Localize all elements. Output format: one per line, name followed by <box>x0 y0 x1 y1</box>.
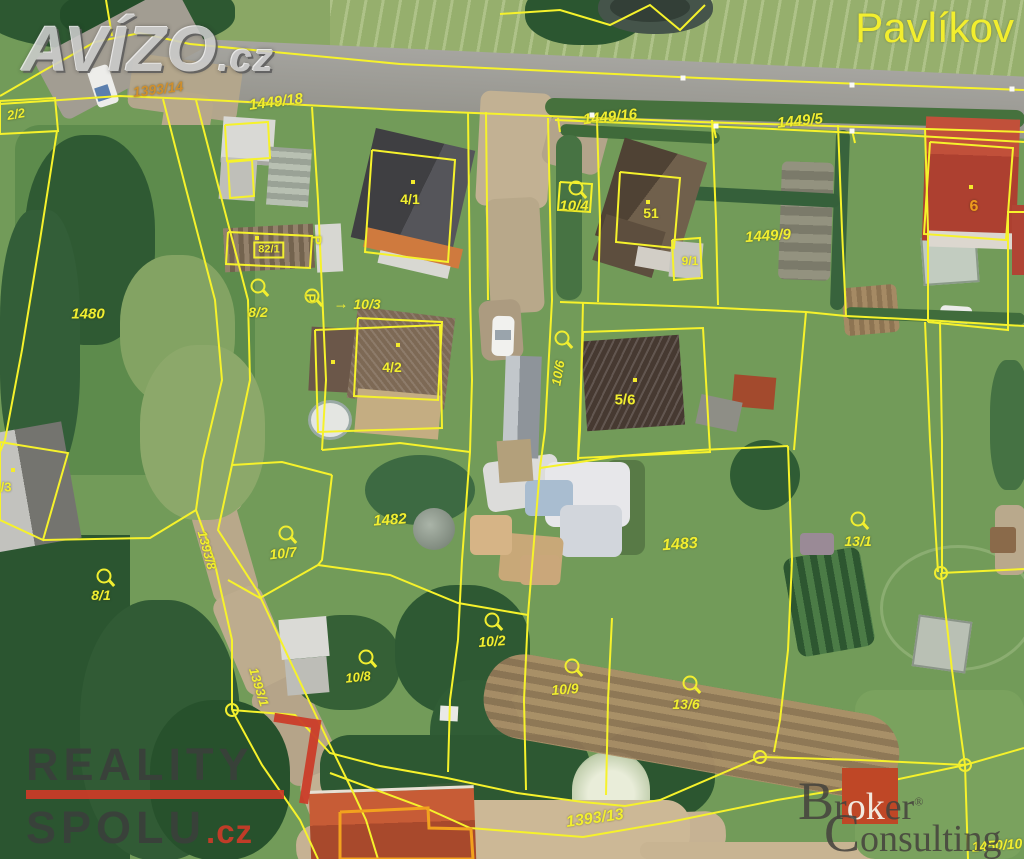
shed-10-8-b <box>285 656 330 696</box>
trees-right-blob <box>730 440 800 510</box>
house-4-2-tan-section <box>354 388 442 439</box>
house-6-annex <box>1012 205 1024 275</box>
cadastre-boundary <box>712 120 718 305</box>
reality-spolu-line2: SPOLU.cz <box>26 805 284 850</box>
cadastre-boundary <box>925 322 938 572</box>
boundary-circle-symbol <box>555 331 570 346</box>
garden-rows-right <box>782 546 876 658</box>
debris-white3 <box>560 505 622 557</box>
parcel-label-10/6: 10/6 <box>549 359 566 386</box>
town-label: Pavlíkov <box>855 4 1014 52</box>
boundary-flag-symbol: P <box>303 293 319 302</box>
building-9-1 <box>668 241 703 280</box>
driveway-seg <box>485 197 545 315</box>
shed-gray-topleft <box>219 157 258 201</box>
debris-boxes <box>520 555 560 585</box>
garden-bed-purple <box>800 533 834 555</box>
shed-10-8-a <box>278 616 329 660</box>
silo-round <box>413 508 455 550</box>
hedge-1449-9-east <box>830 130 850 310</box>
broker-consulting-word2: Consulting <box>824 802 1002 859</box>
house-6-wall-white <box>928 230 1017 249</box>
house-5-6-roof <box>581 335 685 432</box>
reality-spolu-tld: .cz <box>206 813 253 850</box>
driveway-seg <box>475 90 553 209</box>
boundary-circle-symbol <box>305 289 320 304</box>
debris-pallets2 <box>470 515 512 555</box>
cadastre-boundary <box>940 322 942 572</box>
reality-spolu-watermark: REALITY SPOLU.cz <box>26 742 284 850</box>
cadastre-boundary <box>578 302 583 460</box>
brown-box-right <box>990 527 1016 553</box>
building-white-strip <box>315 223 343 272</box>
garden-shed-bottom-right <box>912 614 973 673</box>
reality-spolu-underline <box>26 790 284 799</box>
reality-spolu-line1: REALITY <box>26 742 284 787</box>
building-82-1-roof <box>223 224 315 273</box>
broker-cap-c: C <box>824 803 860 859</box>
reference-arrow-icon: → <box>334 296 349 313</box>
avizo-logo-tld: .cz <box>218 36 274 80</box>
cadastre-boundary <box>794 312 806 450</box>
cadastre-boundary <box>322 443 470 452</box>
greenhouse-topleft <box>266 147 312 208</box>
parcel-label-10/7: 10/7 <box>269 545 298 562</box>
reality-spolu-line2-text: SPOLU <box>26 802 206 853</box>
cadastre-boundary <box>852 130 855 143</box>
bush-strip-driveway <box>556 135 582 300</box>
parcel-label-13/1: 13/1 <box>844 534 871 548</box>
corner-house-red-roof <box>309 785 476 859</box>
aerial-cadastral-map: 1393/141449/181449/161449/52/214808/282/… <box>0 0 1024 859</box>
white-square-small <box>440 706 459 722</box>
broker-consulting-watermark: Broker® Consulting <box>798 766 1024 856</box>
garden-beds-gray <box>778 161 834 281</box>
cadastre-boundary <box>312 107 326 450</box>
boundary-circle-symbol <box>851 512 866 527</box>
avizo-logo-text: AVÍZO <box>22 13 218 85</box>
shed-tan <box>497 439 534 483</box>
trees-right-edge <box>990 360 1024 490</box>
car-driveway-windshield <box>495 330 511 340</box>
pool-white <box>308 400 352 440</box>
broker-word2-rest: onsulting <box>860 818 1001 859</box>
avizo-watermark: AVÍZO.cz <box>22 12 274 86</box>
grass-patch-1480b <box>140 345 265 520</box>
boundary-circle-symbol <box>279 526 294 541</box>
house-6-red-roof <box>922 116 1020 243</box>
parcel-label-2/2: 2/2 <box>6 106 26 122</box>
cadastre-boundary <box>318 475 332 565</box>
parcel-label-1483: 1483 <box>662 536 699 554</box>
